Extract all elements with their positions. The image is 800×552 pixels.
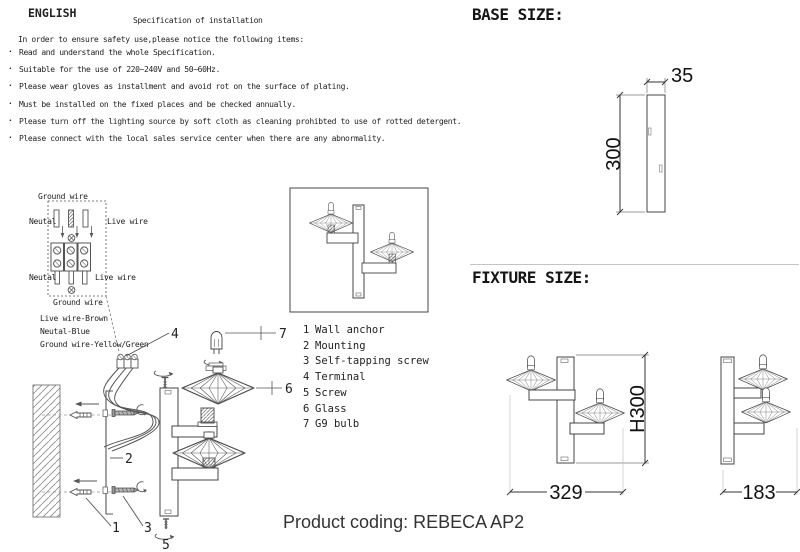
ground-wire-top-label: Ground wire xyxy=(38,192,88,201)
fixture-height-dim: H300 xyxy=(627,385,649,433)
callout-2: 2 xyxy=(125,452,133,467)
base-plate xyxy=(647,95,665,212)
part-number: 5 xyxy=(303,386,315,402)
live-wire-top-label: Live wire xyxy=(107,217,148,226)
part-item: 5Screw xyxy=(303,386,429,402)
part-number: 3 xyxy=(303,354,315,370)
assembled-preview xyxy=(290,188,428,312)
part-label: G9 bulb xyxy=(315,418,359,430)
parts-list: 1Wall anchor 2Mounting 3Self-tapping scr… xyxy=(303,323,429,433)
exploded-assembly: 1 2 3 4 5 6 7 xyxy=(33,326,293,552)
part-label: Terminal xyxy=(315,371,366,383)
terminal-block xyxy=(51,243,91,271)
product-coding: Product coding: REBECA AP2 xyxy=(283,512,524,533)
callout-6: 6 xyxy=(285,382,293,397)
wall-section xyxy=(33,385,60,517)
part-item: 4Terminal xyxy=(303,370,429,386)
part-label: Self-tapping screw xyxy=(315,355,429,367)
part-item: 7G9 bulb xyxy=(303,417,429,433)
part-item: 6Glass xyxy=(303,402,429,418)
g9-bulb xyxy=(211,332,222,354)
side-shade-lower xyxy=(742,398,791,423)
safety-note: Suitable for the use of 220~240V and 50~… xyxy=(8,65,461,74)
fixture-front-view: H300 329 xyxy=(507,352,649,504)
legend-live-wire: Live wire-Brown xyxy=(40,314,108,323)
safety-note: Must be installed on the fixed places an… xyxy=(8,100,461,109)
safety-note: Please wear gloves as installment and av… xyxy=(8,82,461,91)
screw-top xyxy=(162,378,169,390)
callout-3: 3 xyxy=(144,521,152,536)
legend-neutral: Neutal-Blue xyxy=(40,327,90,336)
legend-ground-wire: Ground wire-Yellow/Green xyxy=(40,340,149,349)
neutral-bottom-label: Neutal xyxy=(29,273,57,282)
part-label: Mounting xyxy=(315,340,366,352)
self-tapping-screw-bottom xyxy=(112,487,139,494)
callout-5: 5 xyxy=(162,538,170,552)
front-shade-lower xyxy=(576,399,625,424)
part-item: 1Wall anchor xyxy=(303,323,429,339)
side-shade-upper xyxy=(739,365,788,390)
safety-notes-list: Read and understand the whole Specificat… xyxy=(8,48,461,151)
terminal-exploded xyxy=(117,354,138,368)
fixture-depth-dim: 183 xyxy=(742,482,775,504)
fixture-side-view: 183 xyxy=(720,355,800,504)
part-item: 2Mounting xyxy=(303,339,429,355)
part-label: Glass xyxy=(315,403,347,415)
part-number: 6 xyxy=(303,402,315,418)
glass-shade-exploded xyxy=(182,367,254,404)
callout-7: 7 xyxy=(279,327,287,342)
fixture-width-dim: 329 xyxy=(549,482,582,504)
ground-wire-bottom-label: Ground wire xyxy=(53,298,103,307)
part-number: 2 xyxy=(303,339,315,355)
language-label: ENGLISH xyxy=(28,6,76,20)
fixture-size-heading: FIXTURE SIZE: xyxy=(472,268,591,287)
screw-bottom xyxy=(163,519,169,529)
part-item: 3Self-tapping screw xyxy=(303,354,429,370)
front-shade-upper xyxy=(507,366,556,391)
callout-4: 4 xyxy=(171,327,179,342)
lamp-socket xyxy=(201,408,214,423)
part-number: 4 xyxy=(303,370,315,386)
part-number: 1 xyxy=(303,323,315,339)
ground-pin xyxy=(69,210,74,227)
page-title: Specification of installation xyxy=(133,16,263,25)
part-label: Screw xyxy=(315,387,347,399)
safety-note: Read and understand the whole Specificat… xyxy=(8,48,461,57)
installation-manual-page: { "doc": { "language": "ENGLISH", "title… xyxy=(0,0,800,552)
part-number: 7 xyxy=(303,417,315,433)
base-size-drawing: 35 300 xyxy=(603,65,693,215)
safety-note: Please connect with the local sales serv… xyxy=(8,134,461,143)
safety-note: Please turn off the lighting source by s… xyxy=(8,117,461,126)
wiring-diagram: Ground wire Neutal Live wire Neutal Live… xyxy=(29,192,149,352)
base-width-dim: 35 xyxy=(671,65,693,87)
callout-1: 1 xyxy=(112,521,120,536)
live-wire-bottom-label: Live wire xyxy=(95,273,136,282)
base-size-heading: BASE SIZE: xyxy=(472,5,563,24)
neutral-top-label: Neutal xyxy=(29,217,57,226)
base-height-dim: 300 xyxy=(603,137,625,170)
wall-anchor-bottom xyxy=(70,489,91,496)
part-label: Wall anchor xyxy=(315,324,385,336)
intro-line: In order to ensure safety use,please not… xyxy=(18,35,304,44)
wall-anchor-top xyxy=(70,412,91,419)
